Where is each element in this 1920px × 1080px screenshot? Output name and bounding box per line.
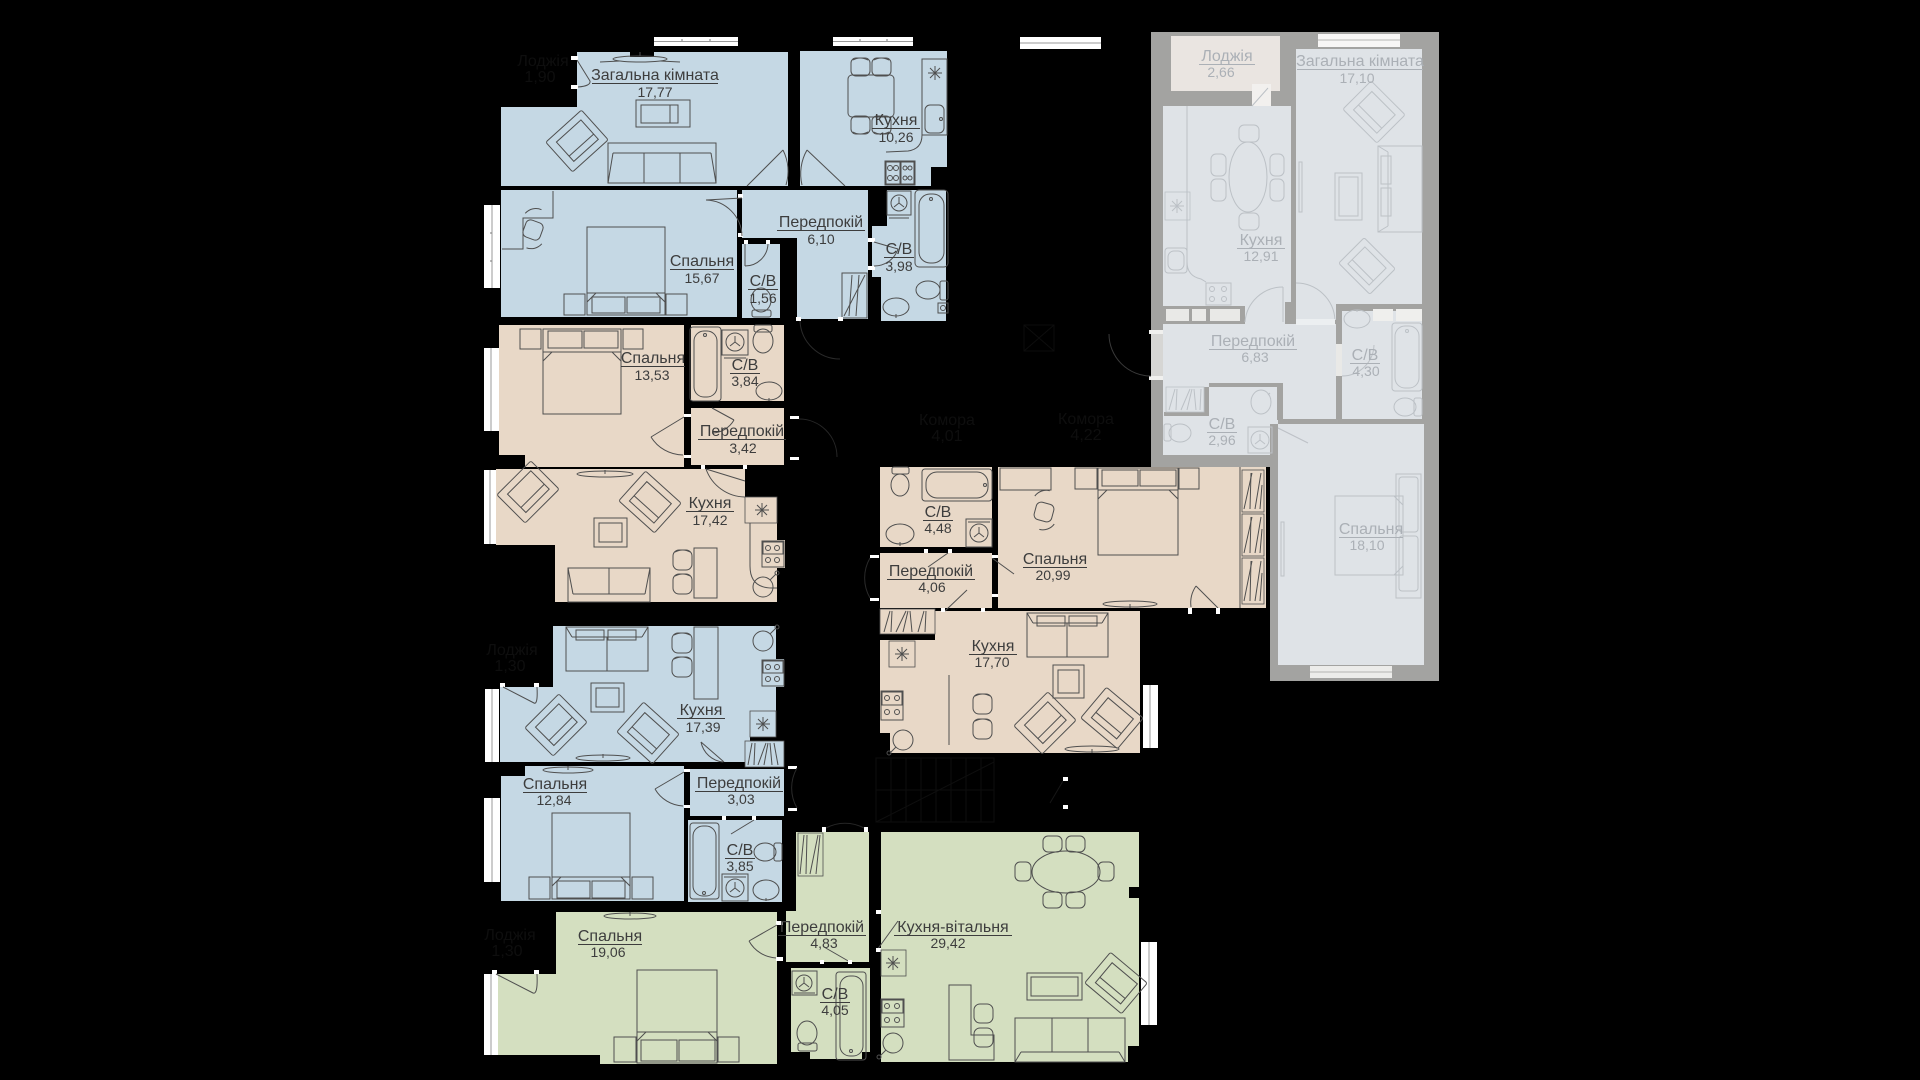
svg-text:10,26: 10,26 <box>878 129 913 145</box>
svg-text:4,05: 4,05 <box>821 1002 848 1018</box>
svg-text:Передпокій: Передпокій <box>1211 333 1295 350</box>
svg-text:Комора: Комора <box>1058 411 1114 428</box>
svg-text:3,85: 3,85 <box>726 858 753 874</box>
svg-text:Передпокій: Передпокій <box>697 775 781 792</box>
svg-text:1,30: 1,30 <box>491 943 522 960</box>
svg-text:4,48: 4,48 <box>924 520 951 536</box>
svg-text:Кухня: Кухня <box>972 638 1015 655</box>
svg-text:С/В: С/В <box>925 504 952 521</box>
svg-text:1,56: 1,56 <box>749 290 776 306</box>
svg-text:17,70: 17,70 <box>974 654 1009 670</box>
svg-text:Кухня: Кухня <box>680 702 723 719</box>
svg-text:17,77: 17,77 <box>637 84 672 100</box>
svg-text:Кухня: Кухня <box>875 112 918 129</box>
svg-text:Комора: Комора <box>919 412 975 429</box>
svg-text:С/В: С/В <box>822 986 849 1003</box>
svg-text:Лоджія: Лоджія <box>484 927 535 944</box>
svg-text:Загальна кімната: Загальна кімната <box>591 67 719 84</box>
svg-text:Передпокій: Передпокій <box>700 423 784 440</box>
svg-text:С/В: С/В <box>732 357 759 374</box>
svg-text:4,22: 4,22 <box>1070 427 1101 444</box>
svg-text:29,42: 29,42 <box>930 935 965 951</box>
svg-text:4,30: 4,30 <box>1352 363 1379 379</box>
svg-text:15,67: 15,67 <box>684 270 719 286</box>
svg-text:19,06: 19,06 <box>590 944 625 960</box>
svg-text:3,03: 3,03 <box>727 791 754 807</box>
svg-text:Кухня-вітальня: Кухня-вітальня <box>897 919 1008 936</box>
svg-text:20,99: 20,99 <box>1035 567 1070 583</box>
svg-text:С/В: С/В <box>727 842 754 859</box>
svg-text:Спальня: Спальня <box>670 253 734 270</box>
svg-text:2,66: 2,66 <box>1207 64 1234 80</box>
svg-text:4,06: 4,06 <box>918 579 945 595</box>
svg-text:12,91: 12,91 <box>1243 248 1278 264</box>
svg-text:Кухня: Кухня <box>1240 232 1283 249</box>
svg-text:Спальня: Спальня <box>1023 551 1087 568</box>
svg-text:1,30: 1,30 <box>494 658 525 675</box>
svg-text:18,10: 18,10 <box>1349 537 1384 553</box>
svg-text:4,01: 4,01 <box>931 428 962 445</box>
svg-text:3,84: 3,84 <box>731 373 758 389</box>
svg-text:Загальна кімната: Загальна кімната <box>1296 53 1424 70</box>
svg-text:2,96: 2,96 <box>1208 432 1235 448</box>
svg-text:4,83: 4,83 <box>810 935 837 951</box>
svg-text:17,39: 17,39 <box>685 719 720 735</box>
svg-text:Передпокій: Передпокій <box>779 214 863 231</box>
svg-text:Спальня: Спальня <box>621 350 685 367</box>
svg-text:Спальня: Спальня <box>523 776 587 793</box>
svg-text:1,90: 1,90 <box>524 69 555 86</box>
svg-text:3,98: 3,98 <box>885 258 912 274</box>
svg-text:3,42: 3,42 <box>729 440 756 456</box>
svg-text:Передпокій: Передпокій <box>889 563 973 580</box>
svg-text:С/В: С/В <box>1352 347 1379 364</box>
svg-text:17,10: 17,10 <box>1339 70 1374 86</box>
svg-text:12,84: 12,84 <box>536 792 571 808</box>
svg-text:Спальня: Спальня <box>1339 521 1403 538</box>
svg-text:С/В: С/В <box>886 241 913 258</box>
svg-text:6,10: 6,10 <box>807 231 834 247</box>
svg-text:Кухня: Кухня <box>689 495 732 512</box>
svg-text:13,53: 13,53 <box>634 367 669 383</box>
svg-text:17,42: 17,42 <box>692 512 727 528</box>
svg-text:Лоджія: Лоджія <box>1201 48 1252 65</box>
svg-text:6,83: 6,83 <box>1241 349 1268 365</box>
svg-text:Лоджія: Лоджія <box>517 53 568 70</box>
svg-text:С/В: С/В <box>1209 416 1236 433</box>
svg-text:Спальня: Спальня <box>578 928 642 945</box>
svg-text:С/В: С/В <box>750 273 777 290</box>
svg-text:Лоджія: Лоджія <box>486 642 537 659</box>
svg-text:Передпокій: Передпокій <box>780 919 864 936</box>
